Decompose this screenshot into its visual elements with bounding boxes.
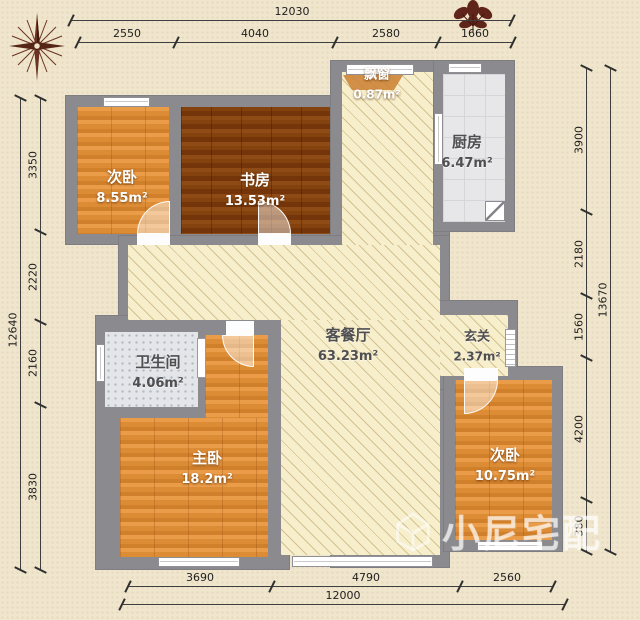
dim-label-bottom-total: 12000 — [326, 589, 361, 602]
room-area: 18.2m² — [181, 470, 232, 490]
dim-label: 2160 — [27, 349, 40, 377]
dim-line-bottom-total — [122, 604, 565, 605]
room-area: 8.55m² — [96, 189, 147, 209]
dim-label: 3830 — [27, 473, 40, 501]
dim-label: 380 — [573, 516, 586, 537]
room-name: 主卧 — [181, 447, 232, 470]
room-area: 13.53m² — [225, 192, 285, 212]
door-kitchen-icon — [485, 201, 505, 221]
room-area: 6.47m² — [441, 154, 492, 174]
room-label-study: 书房 13.53m² — [225, 169, 285, 211]
room-name: 厨房 — [441, 131, 492, 154]
dim-label: 2220 — [27, 263, 40, 291]
door-opening-bedroom2 — [464, 368, 498, 380]
room-area: 63.23m² — [318, 347, 378, 367]
window-bedroom1-top — [103, 97, 150, 107]
room-name: 次卧 — [96, 166, 147, 189]
room-label-bathroom: 卫生间 4.06m² — [132, 351, 183, 393]
room-name: 书房 — [225, 169, 285, 192]
dim-label: 1660 — [461, 27, 489, 40]
room-label-bedroom-top-left: 次卧 8.55m² — [96, 166, 147, 208]
floor-plan-canvas: 次卧 8.55m² 书房 13.53m² 飘窗 0.87m² 厨房 6.47m²… — [0, 0, 640, 620]
room-name: 玄关 — [453, 327, 500, 347]
room-name: 卫生间 — [132, 351, 183, 374]
dim-label-right-total: 13670 — [597, 283, 610, 318]
room-name: 客餐厅 — [318, 324, 378, 347]
room-label-living-dining: 客餐厅 63.23m² — [318, 324, 378, 366]
dim-line-top-segments — [78, 42, 513, 43]
window-master-bottom — [158, 557, 240, 567]
room-label-bay-window: 飘窗 0.87m² — [353, 65, 400, 103]
dim-label: 3350 — [27, 151, 40, 179]
door-opening-master — [226, 321, 254, 335]
room-area: 0.87m² — [353, 85, 400, 103]
compass-rose-icon — [6, 12, 68, 84]
door-opening-study — [258, 234, 291, 245]
dim-label: 4040 — [241, 27, 269, 40]
dim-line-bottom-segments — [128, 586, 553, 587]
window-living-bottom — [292, 556, 433, 567]
dim-label: 2550 — [113, 27, 141, 40]
door-entry-main — [505, 329, 516, 367]
room-area: 10.75m² — [475, 467, 535, 487]
room-label-kitchen: 厨房 6.47m² — [441, 131, 492, 173]
floor-living-mid — [128, 245, 440, 320]
window-kitchen-top — [448, 63, 482, 73]
door-opening-bedroom1 — [137, 234, 170, 245]
room-name: 次卧 — [475, 444, 535, 467]
room-label-bedroom-bottom-right: 次卧 10.75m² — [475, 444, 535, 486]
room-label-master-bedroom: 主卧 18.2m² — [181, 447, 232, 489]
room-label-entry: 玄关 2.37m² — [453, 327, 500, 365]
dim-label: 4200 — [573, 415, 586, 443]
dim-label: 2560 — [493, 571, 521, 584]
dim-line-left-total — [20, 98, 21, 570]
window-bathroom-left — [96, 344, 105, 382]
dim-label: 3900 — [573, 126, 586, 154]
dim-label: 2180 — [573, 240, 586, 268]
dim-line-top-total — [72, 20, 513, 21]
dim-label-left-total: 12640 — [7, 313, 20, 348]
dim-line-right-total — [610, 68, 611, 552]
dim-line-right-segments — [586, 68, 587, 552]
dim-label: 3690 — [186, 571, 214, 584]
dim-label: 2580 — [372, 27, 400, 40]
room-name: 飘窗 — [353, 65, 400, 85]
dim-line-left-segments — [40, 98, 41, 570]
dim-label-top-total: 12030 — [275, 5, 310, 18]
dim-label: 4790 — [352, 571, 380, 584]
room-area: 2.37m² — [453, 347, 500, 365]
door-sliding-bathroom — [197, 338, 206, 378]
room-area: 4.06m² — [132, 374, 183, 394]
window-bedroom2-bottom — [477, 541, 543, 551]
dim-label: 1560 — [573, 313, 586, 341]
